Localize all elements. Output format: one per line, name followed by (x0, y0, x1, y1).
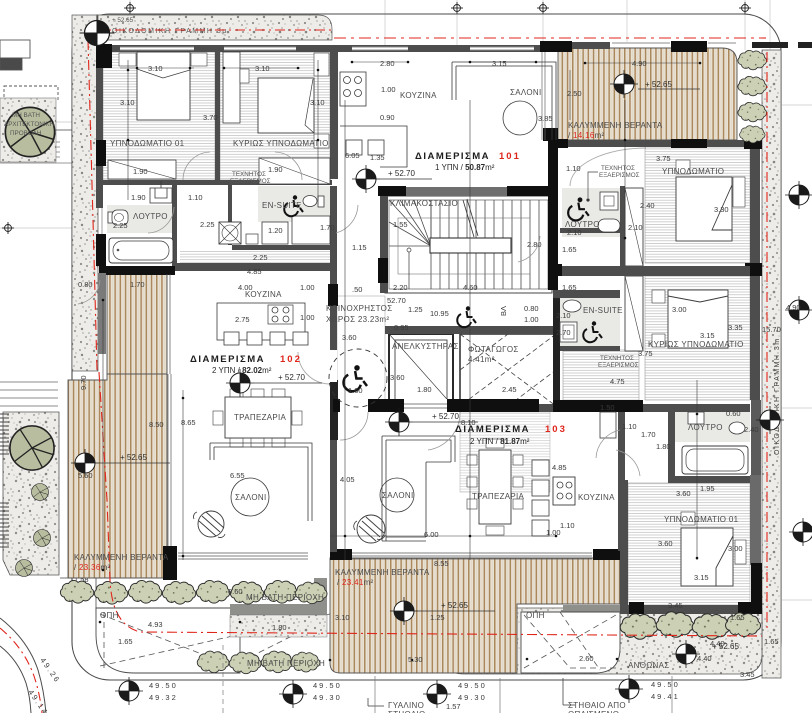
svg-text:3.45: 3.45 (668, 601, 683, 610)
svg-text:ΓΥΑΛΙΝΟ: ΓΥΑΛΙΝΟ (388, 701, 424, 710)
svg-text:ΤΡΑΠΕΖΑΡΙΑ: ΤΡΑΠΕΖΑΡΙΑ (472, 492, 525, 501)
svg-text:4.90: 4.90 (786, 303, 801, 312)
svg-text:ΑΝΕΛΚΥΣΤΗΡΑΣ: ΑΝΕΛΚΥΣΤΗΡΑΣ (392, 342, 459, 351)
svg-text:+ 52.65: + 52.65 (120, 453, 147, 462)
svg-text:4.00: 4.00 (238, 283, 253, 292)
svg-text:1.65: 1.65 (562, 283, 577, 292)
svg-text:0.80: 0.80 (78, 280, 93, 289)
svg-text:ΚΟΥΖΙΝΑ: ΚΟΥΖΙΝΑ (400, 91, 437, 100)
svg-text:ΛΟΥΤΡΟ: ΛΟΥΤΡΟ (133, 212, 168, 221)
svg-text:1.70: 1.70 (130, 280, 145, 289)
svg-text:ΚΟΥΖΙΝΑ: ΚΟΥΖΙΝΑ (578, 493, 615, 502)
svg-text:2.10: 2.10 (567, 228, 582, 237)
svg-text:2.25: 2.25 (113, 221, 128, 230)
svg-text:4.05: 4.05 (340, 475, 355, 484)
svg-text:1.70: 1.70 (641, 430, 656, 439)
svg-text:1.65: 1.65 (562, 245, 577, 254)
svg-text:ΚΑΛΥΜΜΕΝΗ ΒΕΡΑΝΤΑ: ΚΑΛΥΜΜΕΝΗ ΒΕΡΑΝΤΑ (568, 121, 663, 130)
svg-text:1.60: 1.60 (348, 386, 363, 395)
svg-text:ΤΕΧΝΗΤΟΣ: ΤΕΧΝΗΤΟΣ (601, 165, 635, 172)
svg-text:3.35: 3.35 (728, 323, 743, 332)
svg-text:2.25: 2.25 (253, 253, 268, 262)
svg-text:1.10: 1.10 (566, 164, 581, 173)
svg-text:ΟΙΚΟΔΟΜΙΚΗ ΓΡΑΜΜΗ 3μ: ΟΙΚΟΔΟΜΙΚΗ ΓΡΑΜΜΗ 3μ (112, 28, 228, 35)
svg-text:4.40: 4.40 (697, 654, 712, 663)
svg-text:1.90: 1.90 (131, 193, 146, 202)
svg-text:ΕΞΑΕΡΙΣΜΟΣ: ΕΞΑΕΡΙΣΜΟΣ (230, 178, 271, 185)
svg-text:1.80: 1.80 (656, 442, 671, 451)
svg-text:2.25: 2.25 (200, 220, 215, 229)
svg-text:6.00: 6.00 (424, 530, 439, 539)
svg-text:1.95: 1.95 (700, 484, 715, 493)
svg-text:49.30: 49.30 (313, 693, 342, 702)
svg-text:1.25: 1.25 (408, 305, 423, 314)
svg-text:4.41m²: 4.41m² (468, 355, 495, 364)
svg-text:ΣΤΗΘΑΙΟ ΑΠΟ: ΣΤΗΘΑΙΟ ΑΠΟ (568, 701, 626, 710)
svg-text:3.85: 3.85 (538, 114, 553, 123)
svg-text:1.80: 1.80 (272, 623, 287, 632)
svg-text:ΦΩΤΑΓΩΓΟΣ: ΦΩΤΑΓΩΓΟΣ (468, 345, 519, 354)
svg-text:49.32: 49.32 (149, 693, 178, 702)
svg-text:1.80: 1.80 (417, 385, 432, 394)
svg-text:1.90: 1.90 (268, 165, 283, 174)
svg-text:3.10: 3.10 (310, 98, 325, 107)
svg-text:2.80: 2.80 (380, 59, 395, 68)
svg-text:1.65: 1.65 (118, 637, 133, 646)
svg-text:ΟΠΗ: ΟΠΗ (526, 611, 545, 620)
svg-text:0.90: 0.90 (380, 113, 395, 122)
svg-text:ΣΑΛΟΝΙ: ΣΑΛΟΝΙ (382, 491, 413, 500)
svg-text:102: 102 (280, 354, 302, 365)
svg-text:ΥΠΝΟΔΩΜΑΤΙΟ 01: ΥΠΝΟΔΩΜΑΤΙΟ 01 (664, 515, 739, 524)
svg-text:ΒΛ: ΒΛ (499, 306, 508, 316)
svg-text:2.60: 2.60 (579, 654, 594, 663)
svg-text:.50: .50 (352, 285, 362, 294)
svg-text:ΚΥΡΙΩΣ ΥΠΝΟΔΩΜΑΤΙΟ: ΚΥΡΙΩΣ ΥΠΝΟΔΩΜΑΤΙΟ (648, 340, 744, 349)
svg-text:ΚΥΡΙΩΣ ΥΠΝΟΔΩΜΑΤΙΟ: ΚΥΡΙΩΣ ΥΠΝΟΔΩΜΑΤΙΟ (233, 139, 329, 148)
svg-text:4.40: 4.40 (710, 639, 725, 648)
svg-text:/ 14.16m²: / 14.16m² (568, 131, 605, 140)
svg-text:2.75: 2.75 (235, 315, 250, 324)
svg-text:3.10: 3.10 (148, 64, 163, 73)
svg-text:3.15: 3.15 (492, 59, 507, 68)
svg-text:ΛΟΥΤΡΟ: ΛΟΥΤΡΟ (688, 423, 723, 432)
svg-text:3.00: 3.00 (672, 305, 687, 314)
svg-text:ΠΡΟΒΟΛΗ: ΠΡΟΒΟΛΗ (10, 130, 42, 137)
svg-text:49.50: 49.50 (149, 681, 178, 690)
svg-text:0.95: 0.95 (394, 323, 409, 332)
svg-text:/ 23.36m²: / 23.36m² (74, 563, 111, 572)
svg-text:1.15: 1.15 (352, 243, 367, 252)
svg-text:49.50: 49.50 (313, 681, 342, 690)
svg-text:2.40: 2.40 (744, 425, 759, 434)
svg-text:52.70: 52.70 (387, 296, 406, 305)
svg-text:3.10: 3.10 (255, 64, 270, 73)
svg-text:1.20: 1.20 (268, 226, 283, 235)
svg-text:1.90: 1.90 (133, 167, 148, 176)
svg-text:1.57: 1.57 (446, 702, 461, 711)
svg-text:3.60: 3.60 (658, 539, 673, 548)
svg-text:49.30: 49.30 (458, 693, 487, 702)
svg-text:1.70: 1.70 (320, 223, 335, 232)
svg-text:1.65: 1.65 (764, 637, 779, 646)
svg-text:ΑΡΧΙΤΕΚΤΟΝΙΚΗ: ΑΡΧΙΤΕΚΤΟΝΙΚΗ (4, 121, 55, 128)
svg-text:ΕΞΑΕΡΙΣΜΟΣ: ΕΞΑΕΡΙΣΜΟΣ (598, 362, 639, 369)
svg-text:ΜΗ ΒΑΤΗ: ΜΗ ΒΑΤΗ (12, 112, 40, 119)
svg-text:0.60: 0.60 (228, 587, 243, 596)
svg-text:103: 103 (545, 424, 567, 435)
svg-text:1.55: 1.55 (393, 220, 408, 229)
svg-text:ΕΞΑΕΡΙΣΜΟΣ: ΕΞΑΕΡΙΣΜΟΣ (599, 172, 640, 179)
svg-text:15.70: 15.70 (762, 325, 781, 334)
svg-text:ΚΑΛΥΜΜΕΝΗ ΒΕΡΑΝΤΑ: ΚΑΛΥΜΜΕΝΗ ΒΕΡΑΝΤΑ (74, 553, 169, 562)
svg-text:3.15: 3.15 (700, 331, 715, 340)
svg-text:3.30: 3.30 (714, 205, 729, 214)
svg-text:ΑΝΘΩΝΑΣ: ΑΝΘΩΝΑΣ (628, 661, 669, 670)
svg-text:+ 52.70: + 52.70 (432, 412, 459, 421)
svg-text:1.10: 1.10 (560, 521, 575, 530)
svg-text:ΔΙΑΜΕΡΙΣΜΑ: ΔΙΑΜΕΡΙΣΜΑ (415, 151, 490, 162)
svg-text:ΚΑΛΥΜΜΕΝΗ ΒΕΡΑΝΤΑ: ΚΑΛΥΜΜΕΝΗ ΒΕΡΑΝΤΑ (335, 568, 430, 577)
svg-text:3.75: 3.75 (638, 349, 653, 358)
svg-text:49.50: 49.50 (651, 680, 680, 689)
svg-text:2 ΥΠΝ / 81.87m²: 2 ΥΠΝ / 81.87m² (470, 437, 530, 446)
svg-text:5.50: 5.50 (78, 471, 93, 480)
svg-text:ΥΠΝΟΔΩΜΑΤΙΟ 01: ΥΠΝΟΔΩΜΑΤΙΟ 01 (110, 139, 185, 148)
svg-text:8.50: 8.50 (149, 420, 164, 429)
svg-text:6.55: 6.55 (230, 471, 245, 480)
svg-text:49.50: 49.50 (458, 681, 487, 690)
svg-text:2.10: 2.10 (628, 223, 643, 232)
svg-text:10.95: 10.95 (430, 309, 449, 318)
svg-text:2.50: 2.50 (567, 89, 582, 98)
svg-text:+ 52.70: + 52.70 (278, 373, 305, 382)
svg-text:3.45: 3.45 (740, 670, 755, 679)
svg-text:3.00: 3.00 (728, 544, 743, 553)
svg-text:4.90: 4.90 (632, 59, 647, 68)
svg-text:8.55: 8.55 (434, 559, 449, 568)
svg-text:+ 52.70: + 52.70 (388, 169, 415, 178)
svg-text:2.10: 2.10 (556, 311, 571, 320)
svg-text:9.70: 9.70 (79, 375, 88, 390)
svg-text:3.75: 3.75 (656, 154, 671, 163)
svg-text:EN-SUITE: EN-SUITE (583, 306, 623, 315)
svg-text:8.65: 8.65 (181, 418, 196, 427)
svg-text:5.30: 5.30 (408, 655, 423, 664)
svg-text:ΚΛΙΜΑΚΟΣΤΑΣΙΟ: ΚΛΙΜΑΚΟΣΤΑΣΙΟ (390, 199, 458, 208)
svg-text:/ 23.41m²: / 23.41m² (337, 578, 374, 587)
svg-text:3.60: 3.60 (390, 373, 405, 382)
svg-text:ΤΕΧΝΗΤΟΣ: ΤΕΧΝΗΤΟΣ (232, 171, 266, 178)
svg-text:4.85: 4.85 (552, 463, 567, 472)
svg-text:+ 52.65: + 52.65 (441, 601, 468, 610)
svg-text:1.00: 1.00 (300, 313, 315, 322)
svg-text:1.25: 1.25 (430, 613, 445, 622)
svg-text:3.15: 3.15 (694, 573, 709, 582)
svg-text:ΔΙΑΜΕΡΙΣΜΑ: ΔΙΑΜΕΡΙΣΜΑ (190, 354, 265, 365)
svg-text:4.60: 4.60 (463, 283, 478, 292)
svg-text:ΤΡΑΠΕΖΑΡΙΑ: ΤΡΑΠΕΖΑΡΙΑ (234, 413, 287, 422)
svg-text:1.10: 1.10 (622, 422, 637, 431)
svg-text:101: 101 (499, 151, 521, 162)
svg-text:3.60: 3.60 (342, 333, 357, 342)
svg-text:ΧΩΡΟΣ 23.23m²: ΧΩΡΟΣ 23.23m² (326, 315, 389, 324)
svg-text:4.85: 4.85 (247, 267, 262, 276)
svg-text:ΜΗ ΒΑΤΗ ΠΕΡΙΟΧΗ: ΜΗ ΒΑΤΗ ΠΕΡΙΟΧΗ (247, 659, 325, 668)
svg-text:1.00: 1.00 (546, 528, 561, 537)
svg-text:1.10: 1.10 (188, 193, 203, 202)
svg-text:4.93: 4.93 (148, 620, 163, 629)
svg-text:1.00: 1.00 (524, 315, 539, 324)
svg-text:ΚΟΙΝΟΧΡΗΣΤΟΣ: ΚΟΙΝΟΧΡΗΣΤΟΣ (326, 304, 392, 313)
svg-text:EN-SUITE: EN-SUITE (262, 201, 302, 210)
svg-text:0.80: 0.80 (524, 304, 539, 313)
svg-text:3.60: 3.60 (676, 489, 691, 498)
svg-text:ΟΙΚΟΔΟΜΙΚΗ ΓΡΑΜΜΗ 3m: ΟΙΚΟΔΟΜΙΚΗ ΓΡΑΜΜΗ 3m (774, 337, 781, 455)
svg-text:1.00: 1.00 (381, 85, 396, 94)
svg-text:1.50: 1.50 (600, 403, 615, 412)
svg-text:ΥΠΝΟΔΩΜΑΤΙΟ: ΥΠΝΟΔΩΜΑΤΙΟ (662, 167, 724, 176)
svg-text:+ 52.65: + 52.65 (112, 17, 134, 24)
svg-text:0.60: 0.60 (726, 409, 741, 418)
svg-text:1.65: 1.65 (730, 613, 745, 622)
svg-text:1.35: 1.35 (370, 153, 385, 162)
svg-text:ΤΕΧΝΗΤΟΣ: ΤΕΧΝΗΤΟΣ (600, 355, 634, 362)
svg-text:2.20: 2.20 (393, 283, 408, 292)
svg-text:3.70: 3.70 (203, 113, 218, 122)
svg-text:8.10: 8.10 (461, 418, 476, 427)
svg-text:+ 52.65: + 52.65 (645, 80, 672, 89)
svg-text:ΜΗ ΒΑΤΗ ΠΕΡΙΟΧΗ: ΜΗ ΒΑΤΗ ΠΕΡΙΟΧΗ (246, 593, 324, 602)
svg-text:4.75: 4.75 (610, 377, 625, 386)
svg-text:2.70: 2.70 (556, 328, 571, 337)
svg-text:1.00: 1.00 (300, 283, 315, 292)
svg-text:2.40: 2.40 (640, 201, 655, 210)
svg-text:3.10: 3.10 (120, 98, 135, 107)
svg-text:ΣΑΛΟΝΙ: ΣΑΛΟΝΙ (510, 88, 541, 97)
svg-text:ΟΠΗ: ΟΠΗ (100, 611, 119, 620)
svg-text:ΣΑΛΟΝΙ: ΣΑΛΟΝΙ (235, 493, 266, 502)
svg-text:1 ΥΠΝ / 50.87m²: 1 ΥΠΝ / 50.87m² (435, 163, 495, 172)
svg-text:49.41: 49.41 (651, 692, 680, 701)
svg-text:3.10: 3.10 (335, 613, 350, 622)
svg-text:2.45: 2.45 (502, 385, 517, 394)
svg-text:6.05: 6.05 (345, 151, 360, 160)
